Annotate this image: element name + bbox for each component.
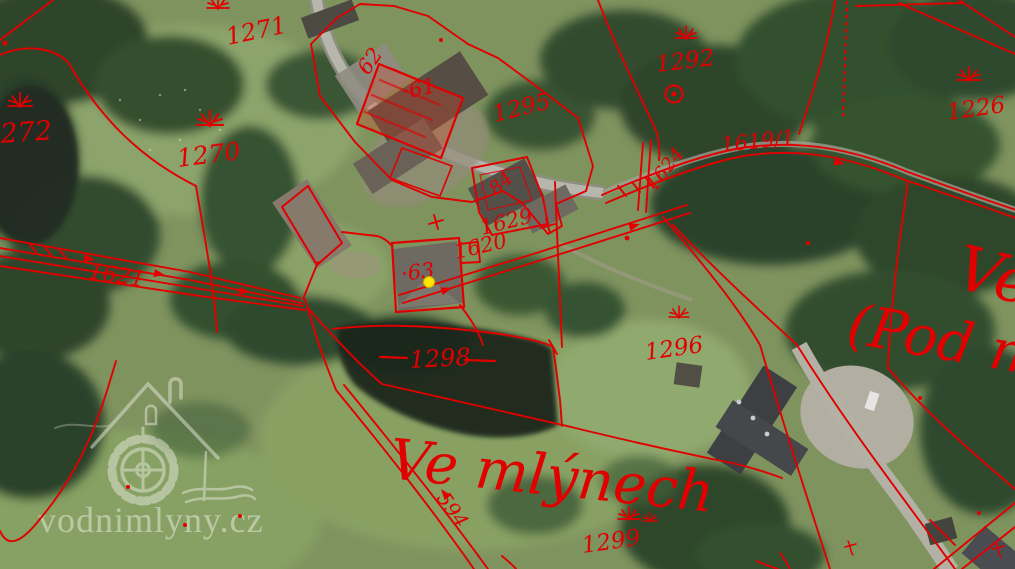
mill-location-marker[interactable] [424, 277, 435, 288]
label-parcel-1272: 1272 [0, 115, 53, 151]
label-parcel-1298: 1298 [409, 343, 471, 374]
map-canvas[interactable]: vodnimlyny.cz [0, 0, 1015, 569]
watermark-site-text: vodnimlyny.cz [38, 500, 264, 540]
